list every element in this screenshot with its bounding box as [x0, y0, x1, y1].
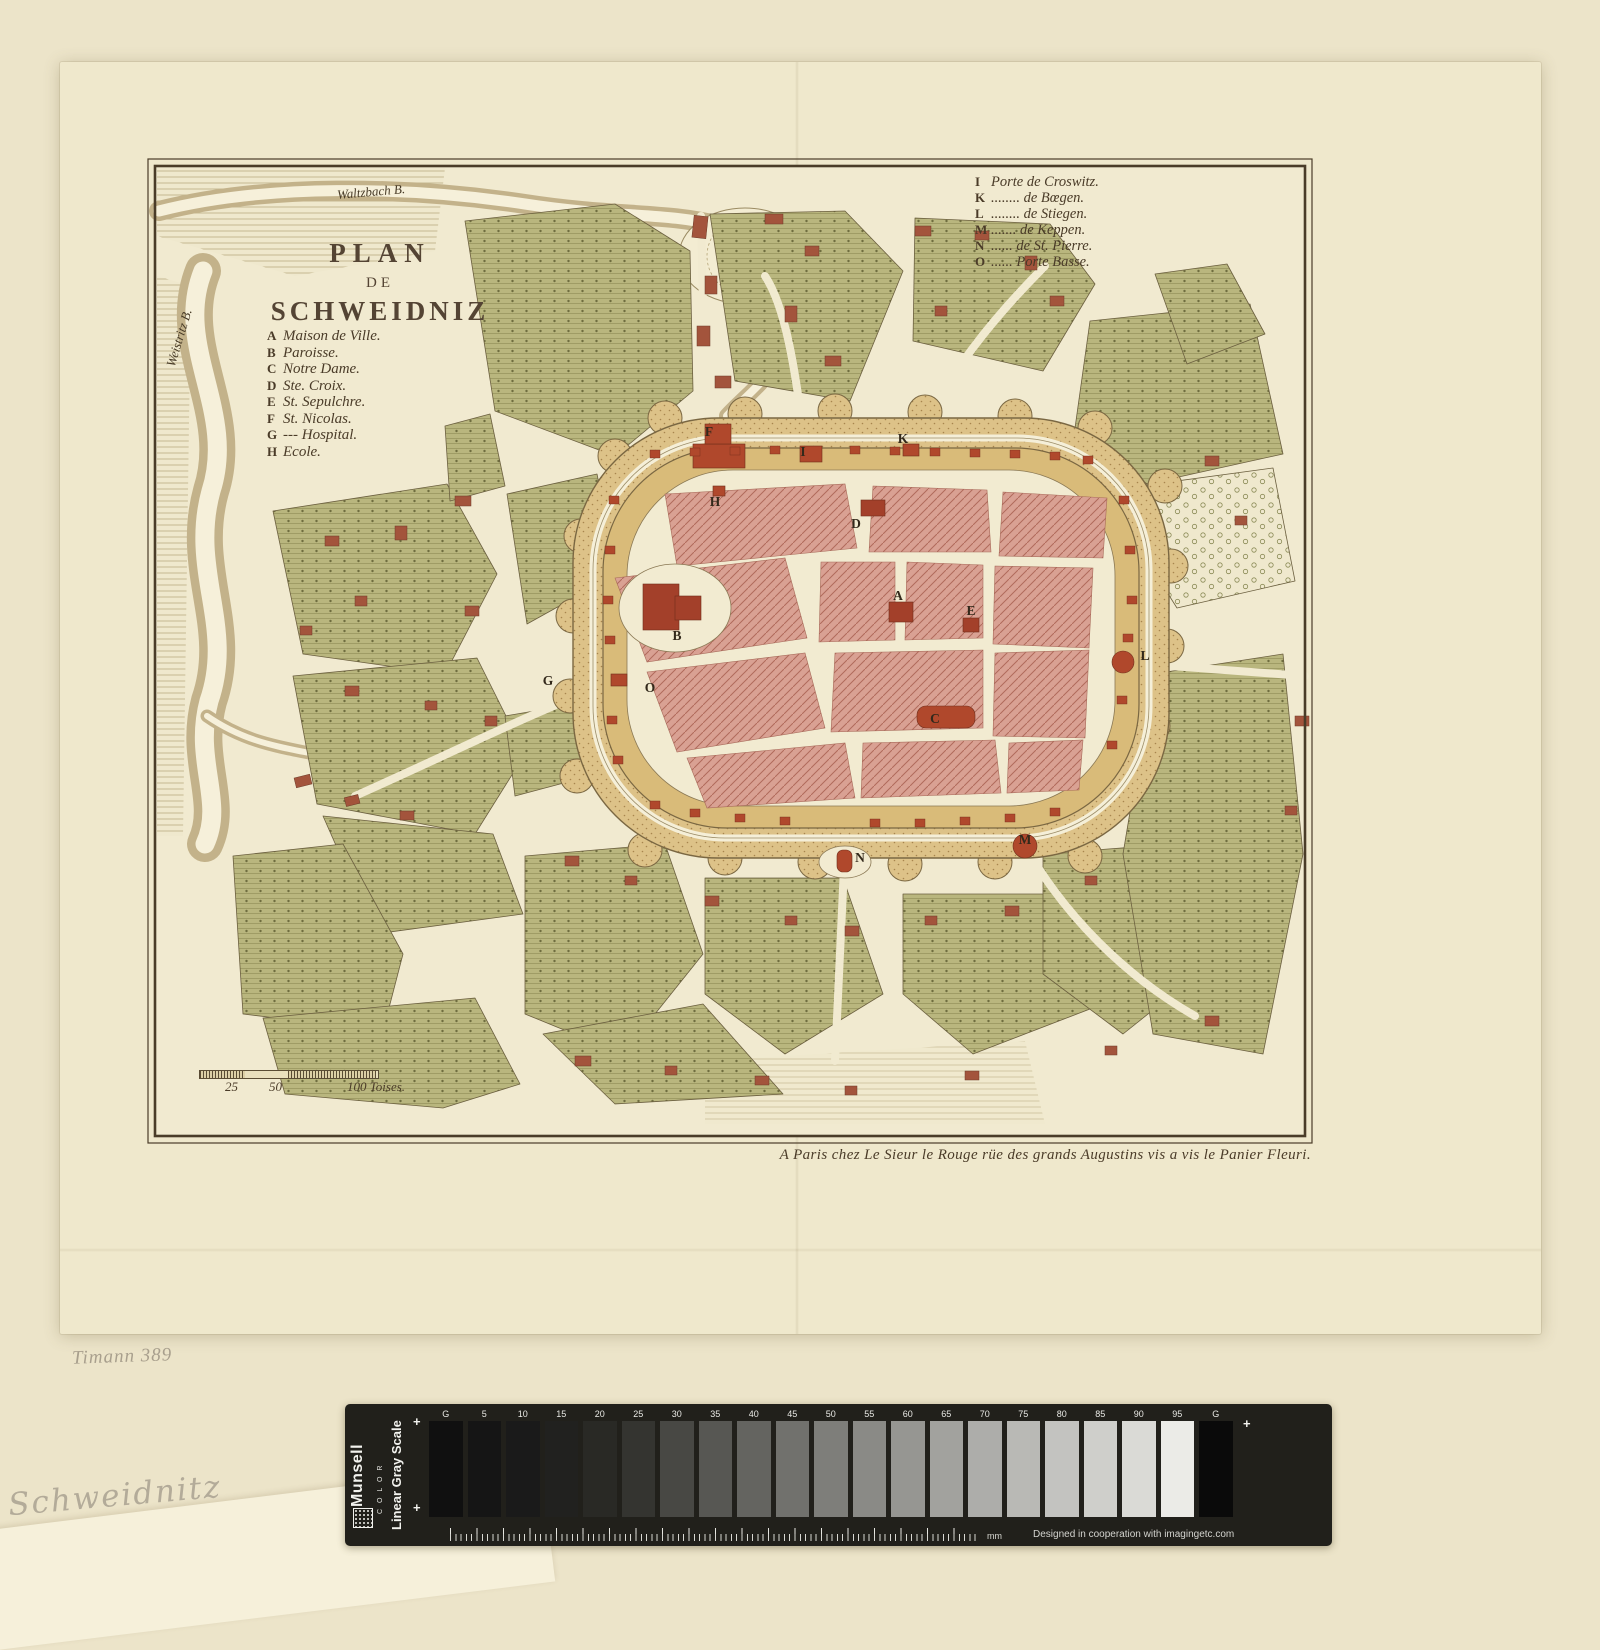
gray-patch: [545, 1421, 579, 1517]
registration-cross-icon: +: [1243, 1416, 1251, 1431]
title-line-3: SCHWEIDNIZ: [255, 296, 505, 327]
scale-segment: [200, 1071, 245, 1078]
legend-label: ...... de St. Pierre.: [991, 238, 1092, 254]
pencil-catalog-number: Timann 389: [72, 1344, 173, 1369]
patch-label: 95: [1161, 1408, 1195, 1421]
legend-label: Maison de Ville.: [283, 328, 381, 344]
legend-key: C: [267, 361, 283, 378]
map-letter-A: A: [893, 588, 903, 604]
patch-label: 60: [891, 1408, 925, 1421]
map-letter-N: N: [855, 850, 865, 866]
gray-patch-column: 20: [583, 1408, 617, 1517]
gray-patch-column: 85: [1084, 1408, 1118, 1517]
patch-label: 55: [853, 1408, 887, 1421]
gray-patch: [853, 1421, 887, 1517]
munsell-color-label: C O L O R: [377, 1434, 384, 1514]
map-letter-F: F: [705, 424, 713, 440]
buildings-legend: AMaison de Ville. BParoisse. CNotre Dame…: [267, 328, 497, 460]
legend-key: N: [975, 238, 991, 254]
gray-patch: [1084, 1421, 1118, 1517]
legend-row: CNotre Dame.: [267, 361, 497, 378]
gray-patch-column: G: [1199, 1408, 1233, 1517]
patch-label: 80: [1045, 1408, 1079, 1421]
legend-label: ...... Porte Basse.: [991, 254, 1090, 270]
patch-label: 65: [930, 1408, 964, 1421]
gray-patch-column: 15: [545, 1408, 579, 1517]
gray-patch: [1007, 1421, 1041, 1517]
map-letter-M: M: [1019, 832, 1032, 848]
gray-patch: [930, 1421, 964, 1517]
map-letter-E: E: [966, 603, 975, 619]
map-title: PLAN DE SCHWEIDNIZ: [255, 238, 505, 327]
gray-patch-column: 70: [968, 1408, 1002, 1517]
gray-patch: [699, 1421, 733, 1517]
gray-patch-column: 80: [1045, 1408, 1079, 1517]
registration-cross-icon: +: [413, 1414, 421, 1429]
publisher-imprint: A Paris chez Le Sieur le Rouge rüe des g…: [145, 1147, 1311, 1164]
patch-label: 90: [1122, 1408, 1156, 1421]
legend-row: L........ de Stiegen.: [975, 206, 1165, 222]
patch-label: 75: [1007, 1408, 1041, 1421]
legend-key: H: [267, 444, 283, 461]
gray-patch: [622, 1421, 656, 1517]
legend-row: K........ de Bœgen.: [975, 190, 1165, 206]
legend-label: Paroisse.: [283, 345, 339, 361]
legend-key: E: [267, 394, 283, 411]
scale-tick-25: 25: [225, 1079, 238, 1095]
map-letter-I: I: [800, 444, 805, 460]
gates-legend: IPorte de Croswitz. K........ de Bœgen. …: [975, 174, 1165, 270]
map-letter-C: C: [930, 711, 940, 727]
map-letter-G: G: [543, 673, 554, 689]
scale-bar-rule: [199, 1070, 379, 1079]
map-letter-B: B: [672, 628, 681, 644]
gray-patch-column: 40: [737, 1408, 771, 1517]
gray-patch-column: 50: [814, 1408, 848, 1517]
map-letter-H: H: [710, 494, 721, 510]
gray-patch: [660, 1421, 694, 1517]
patch-label: G: [1199, 1408, 1233, 1421]
linear-gray-scale-label: Linear Gray Scale: [389, 1412, 404, 1538]
registration-cross-icon: +: [413, 1500, 421, 1515]
mm-ruler: [450, 1528, 980, 1541]
patch-label: 20: [583, 1408, 617, 1421]
gray-patch-column: 30: [660, 1408, 694, 1517]
legend-key: G: [267, 427, 283, 444]
title-line-2: DE: [255, 275, 505, 292]
legend-row: DSte. Croix.: [267, 378, 497, 395]
grayscale-calibration-bar: Munsell C O L O R Linear Gray Scale + + …: [345, 1404, 1332, 1546]
gray-patch-column: 75: [1007, 1408, 1041, 1517]
gray-patch-column: 10: [506, 1408, 540, 1517]
patch-label: 85: [1084, 1408, 1118, 1421]
gray-patch-column: 45: [776, 1408, 810, 1517]
patch-label: 15: [545, 1408, 579, 1421]
scale-tick-50: 50: [269, 1079, 282, 1095]
scale-tick-100: 100 Toises.: [347, 1079, 405, 1095]
legend-row: G--- Hospital.: [267, 427, 497, 444]
gray-patch-column: 25: [622, 1408, 656, 1517]
gray-patch-column: 65: [930, 1408, 964, 1517]
legend-row: O...... Porte Basse.: [975, 254, 1165, 270]
gray-patch: [1122, 1421, 1156, 1517]
legend-label: ........ de Stiegen.: [991, 206, 1087, 222]
scale-bar-labels: 25 50 100 Toises.: [199, 1079, 389, 1095]
gray-patch-column: 55: [853, 1408, 887, 1517]
scale-segment: [245, 1071, 288, 1078]
gray-patch-column: 95: [1161, 1408, 1195, 1517]
gray-patch-strip: G 5 10 15 20 25 30 35 40 45 50 55 60 65 …: [429, 1408, 1233, 1517]
patch-label: 70: [968, 1408, 1002, 1421]
patch-label: 5: [468, 1408, 502, 1421]
patch-label: 10: [506, 1408, 540, 1421]
map-letter-L: L: [1140, 648, 1149, 664]
legend-label: St. Sepulchre.: [283, 394, 365, 410]
legend-label: Porte de Croswitz.: [991, 174, 1099, 190]
engraved-plate: PLAN DE SCHWEIDNIZ AMaison de Ville. BPa…: [145, 156, 1315, 1146]
map-letter-O: O: [645, 680, 656, 696]
legend-key: L: [975, 206, 991, 222]
legend-row: BParoisse.: [267, 345, 497, 362]
calibration-credit: Designed in cooperation with imagingetc.…: [1033, 1529, 1234, 1540]
legend-label: Ste. Croix.: [283, 378, 346, 394]
gray-patch-column: 35: [699, 1408, 733, 1517]
legend-label: St. Nicolas.: [283, 411, 352, 427]
gray-patch: [1045, 1421, 1079, 1517]
photograph-of-map: { "map": { "title_lines": ["PLAN", "DE",…: [0, 0, 1600, 1557]
patch-label: 45: [776, 1408, 810, 1421]
horizontal-fold-crease: [60, 1248, 1541, 1252]
patch-label: 35: [699, 1408, 733, 1421]
legend-row: AMaison de Ville.: [267, 328, 497, 345]
gray-patch: [506, 1421, 540, 1517]
gray-patch: [1199, 1421, 1233, 1517]
legend-key: D: [267, 378, 283, 395]
legend-row: N...... de St. Pierre.: [975, 238, 1165, 254]
legend-key: A: [267, 328, 283, 345]
legend-key: O: [975, 254, 991, 270]
scale-bar: 25 50 100 Toises.: [199, 1070, 389, 1095]
patch-label: G: [429, 1408, 463, 1421]
scale-segment: [288, 1071, 376, 1078]
patch-label: 30: [660, 1408, 694, 1421]
map-letter-D: D: [851, 516, 861, 532]
legend-row: M....... de Keppen.: [975, 222, 1165, 238]
gray-patch-column: G: [429, 1408, 463, 1517]
gray-patch: [776, 1421, 810, 1517]
legend-label: Ecole.: [283, 444, 321, 460]
gray-patch-column: 90: [1122, 1408, 1156, 1517]
gray-patch: [968, 1421, 1002, 1517]
munsell-logo-icon: [353, 1508, 373, 1528]
patch-label: 25: [622, 1408, 656, 1421]
legend-row: IPorte de Croswitz.: [975, 174, 1165, 190]
legend-label: Notre Dame.: [283, 361, 360, 377]
legend-row: FSt. Nicolas.: [267, 411, 497, 428]
legend-row: ESt. Sepulchre.: [267, 394, 497, 411]
patch-label: 40: [737, 1408, 771, 1421]
legend-key: K: [975, 190, 991, 206]
legend-label: ....... de Keppen.: [991, 222, 1085, 238]
legend-key: I: [975, 174, 991, 190]
legend-label: ........ de Bœgen.: [991, 190, 1084, 206]
legend-key: M: [975, 222, 991, 238]
patch-label: 50: [814, 1408, 848, 1421]
map-letter-K: K: [898, 431, 909, 447]
gray-patch: [583, 1421, 617, 1517]
gray-patch: [468, 1421, 502, 1517]
gray-patch-column: 5: [468, 1408, 502, 1517]
legend-label: --- Hospital.: [283, 427, 357, 443]
gray-patch: [1161, 1421, 1195, 1517]
legend-row: HEcole.: [267, 444, 497, 461]
gray-patch: [891, 1421, 925, 1517]
title-line-1: PLAN: [255, 238, 505, 269]
gray-patch-column: 60: [891, 1408, 925, 1517]
ruler-unit-label: mm: [987, 1531, 1002, 1541]
ruler-minor-ticks: [450, 1534, 980, 1541]
legend-key: B: [267, 345, 283, 362]
gray-patch: [429, 1421, 463, 1517]
legend-key: F: [267, 411, 283, 428]
gray-patch: [737, 1421, 771, 1517]
gray-patch: [814, 1421, 848, 1517]
